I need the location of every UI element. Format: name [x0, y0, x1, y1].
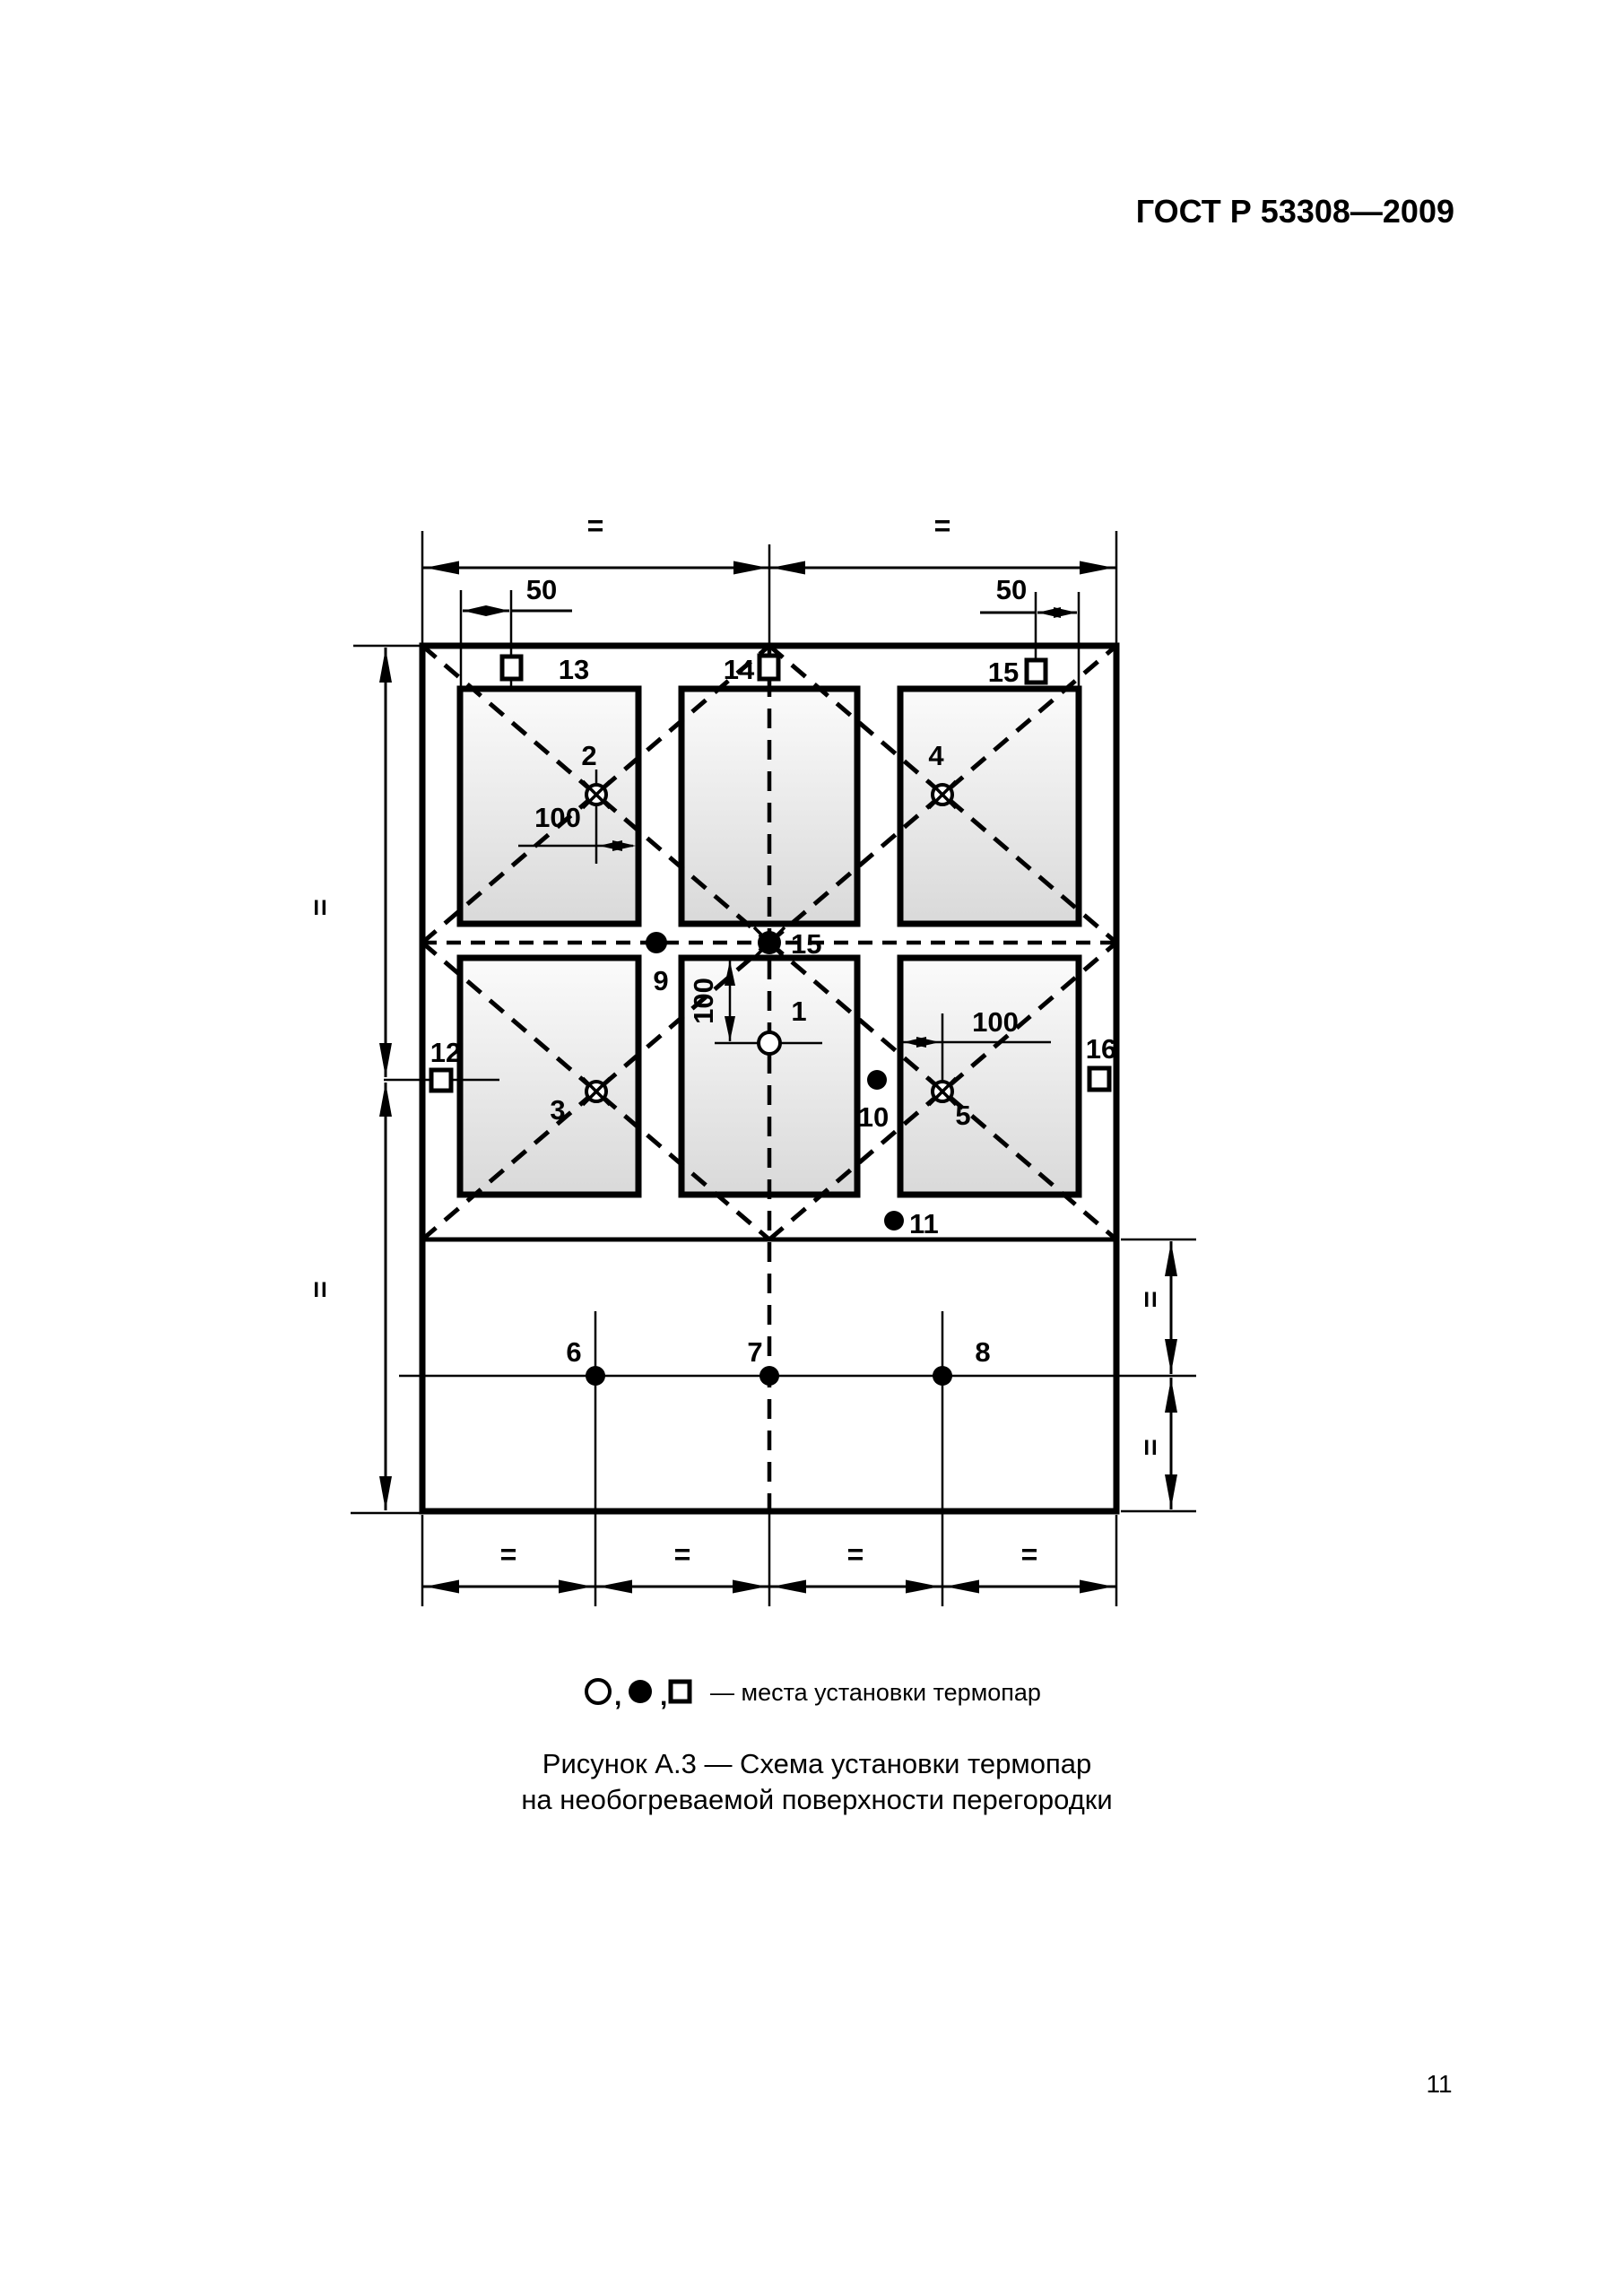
- filled-circle-icon: [933, 1366, 952, 1386]
- dim-value: 100: [972, 1006, 1019, 1038]
- legend: , , — места установки термопар: [586, 1679, 1041, 1711]
- arrowhead: [1165, 1242, 1177, 1276]
- caption-line-2: на необогреваемой поверхности перегородк…: [521, 1784, 1112, 1815]
- document-page: ГОСТ Р 53308—2009: [0, 0, 1623, 2296]
- equal-mark: =: [500, 1538, 517, 1570]
- arrowhead: [733, 1580, 767, 1594]
- open-square-icon: [431, 1070, 451, 1091]
- open-square-icon: [502, 657, 521, 679]
- arrowhead: [379, 1043, 392, 1077]
- point-label: 15: [791, 928, 821, 960]
- filled-circle-icon: [646, 932, 667, 953]
- figure-caption: Рисунок А.3 — Схема установки термопар н…: [521, 1748, 1112, 1815]
- filled-circle-icon: [759, 1366, 779, 1386]
- legend-separator: ,: [660, 1682, 667, 1711]
- equal-mark: =: [934, 509, 951, 542]
- point-label: 2: [581, 740, 596, 771]
- point-label: 9: [653, 965, 668, 996]
- caption-line-1: Рисунок А.3 — Схема установки термопар: [542, 1748, 1091, 1779]
- equal-mark: =: [587, 509, 604, 542]
- dim-value: 100: [534, 802, 581, 833]
- arrowhead: [425, 1580, 459, 1594]
- arrowhead: [733, 561, 768, 575]
- arrowhead: [463, 605, 486, 616]
- arrowhead: [486, 605, 509, 616]
- point-label: 1: [791, 996, 806, 1027]
- legend-text: — места установки термопар: [710, 1679, 1041, 1706]
- arrowhead: [906, 1580, 940, 1594]
- point-label: 16: [1086, 1033, 1116, 1065]
- point-label: 5: [955, 1100, 970, 1131]
- arrowhead: [1165, 1378, 1177, 1413]
- point-label: 8: [975, 1336, 990, 1368]
- arrowhead: [1080, 1580, 1114, 1594]
- dim-value: 50: [526, 574, 557, 605]
- dim-value: 100: [688, 978, 719, 1024]
- thermocouple-14: 14: [724, 654, 778, 685]
- open-circle-icon: [586, 1680, 610, 1703]
- page-number: 11: [1426, 2070, 1452, 2098]
- arrowhead: [425, 561, 459, 575]
- figure-a3-diagram: ГОСТ Р 53308—2009: [0, 0, 1623, 2296]
- arrowhead: [1080, 561, 1114, 575]
- dim-value: 50: [996, 574, 1027, 605]
- panel-row2-col3: [900, 958, 1079, 1195]
- point-label: 7: [747, 1336, 762, 1368]
- arrowhead: [771, 561, 805, 575]
- arrowhead: [598, 1580, 632, 1594]
- open-square-icon: [671, 1682, 690, 1701]
- arrowhead: [1054, 607, 1077, 618]
- arrowhead: [379, 648, 392, 683]
- open-square-icon: [759, 656, 778, 679]
- point-label: 3: [550, 1094, 565, 1126]
- page-header: ГОСТ Р 53308—2009: [1136, 193, 1454, 230]
- arrowhead: [772, 1580, 806, 1594]
- equal-mark-vertical: II: [1143, 1288, 1159, 1312]
- equal-mark-vertical: II: [313, 896, 328, 920]
- arrowhead: [1165, 1339, 1177, 1373]
- point-label: 10: [858, 1101, 889, 1133]
- point-label: 13: [559, 654, 589, 685]
- point-label: 6: [566, 1336, 581, 1368]
- filled-circle-icon: [629, 1680, 652, 1703]
- point-label: 14: [724, 654, 755, 685]
- thermocouple-15-top: 15: [988, 657, 1046, 688]
- point-label: 11: [909, 1208, 939, 1239]
- equal-mark: =: [847, 1538, 864, 1570]
- equal-mark-vertical: II: [1143, 1436, 1159, 1460]
- point-label: 4: [928, 740, 944, 771]
- legend-separator: ,: [614, 1682, 621, 1711]
- open-circle-icon: [759, 1032, 780, 1054]
- equal-mark: =: [1021, 1538, 1038, 1570]
- arrowhead: [379, 1476, 392, 1510]
- equal-mark-vertical: II: [313, 1278, 328, 1302]
- equal-mark: =: [674, 1538, 691, 1570]
- point-label: 12: [430, 1037, 461, 1068]
- open-square-icon: [1089, 1068, 1109, 1090]
- arrowhead: [559, 1580, 593, 1594]
- point-label: 15: [988, 657, 1019, 688]
- filled-circle-icon: [884, 1211, 904, 1231]
- arrowhead: [379, 1083, 392, 1117]
- filled-circle-icon: [586, 1366, 605, 1386]
- open-square-icon: [1027, 660, 1046, 683]
- arrowhead: [945, 1580, 979, 1594]
- filled-circle-icon: [867, 1070, 887, 1090]
- arrowhead: [1165, 1474, 1177, 1509]
